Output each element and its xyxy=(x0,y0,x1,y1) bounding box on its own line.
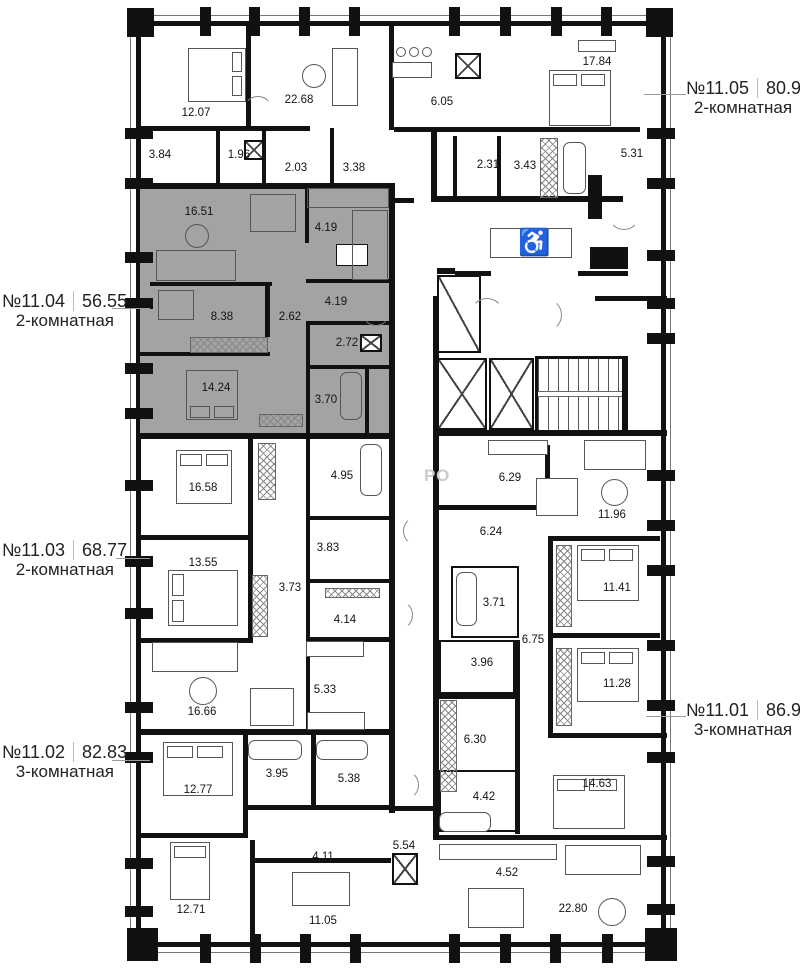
room-area-label: 14.24 xyxy=(202,382,231,394)
stairs-landing xyxy=(538,391,622,397)
room-area-label: 5.33 xyxy=(314,684,336,696)
kitchen-counter-icon xyxy=(352,210,388,280)
wall-segment xyxy=(265,282,270,337)
wall-segment xyxy=(150,282,272,286)
room-area-label: 12.77 xyxy=(184,784,213,796)
wall-segment xyxy=(647,128,675,139)
wall-segment xyxy=(548,536,660,541)
wall-segment xyxy=(306,437,310,731)
round-table-icon xyxy=(598,898,626,926)
wall-segment xyxy=(645,928,677,961)
table-icon xyxy=(392,62,432,78)
apartment-type: 2-комнатная xyxy=(2,560,114,579)
wall-segment xyxy=(595,296,667,301)
wall-segment xyxy=(125,252,153,263)
room-area-label: 16.66 xyxy=(188,706,217,718)
room-area-label: 3.70 xyxy=(315,394,337,406)
wall-segment xyxy=(647,904,675,915)
wall-segment xyxy=(588,175,602,219)
sofa-icon xyxy=(152,642,238,672)
table-icon xyxy=(578,40,616,52)
room-area-label: 2.62 xyxy=(279,311,301,323)
round-table-icon xyxy=(601,479,628,506)
bed-pillow xyxy=(553,74,577,86)
room-area-label: 12.71 xyxy=(177,904,206,916)
wall-segment xyxy=(623,356,628,436)
kitchen-counter-icon xyxy=(307,188,389,208)
bathtub-icon xyxy=(340,372,362,420)
room-area-label: 8.38 xyxy=(211,311,233,323)
table-icon xyxy=(250,688,294,726)
wardrobe-hatch xyxy=(259,414,303,427)
door-arc xyxy=(389,770,419,800)
bed-pillow xyxy=(581,74,605,86)
room-area-label: 12.07 xyxy=(182,107,211,119)
label-leader-line xyxy=(646,716,686,717)
room-area-label: 3.38 xyxy=(343,162,365,174)
room-area-label: 3.84 xyxy=(149,149,171,161)
sofa-icon xyxy=(156,250,236,281)
wall-segment xyxy=(306,365,392,369)
wall-segment xyxy=(306,321,310,433)
room-area-label: 3.43 xyxy=(514,160,536,172)
bed-pillow xyxy=(581,652,605,664)
sofa-icon xyxy=(584,440,646,470)
apartment-number: №11.02 xyxy=(2,742,65,762)
wardrobe-hatch xyxy=(556,648,572,726)
bed-pillow xyxy=(557,779,585,791)
sofa-icon xyxy=(332,48,358,106)
wall-segment xyxy=(551,7,562,36)
apartment-type: 2-комнатная xyxy=(2,311,114,330)
room-area-label: 6.30 xyxy=(464,734,486,746)
wall-segment xyxy=(137,833,248,838)
wall-segment xyxy=(200,934,211,963)
room-area-label: 3.73 xyxy=(279,582,301,594)
door-arc xyxy=(470,298,504,332)
bathtub-icon xyxy=(456,572,477,626)
crossed-shaft xyxy=(489,358,534,430)
apartment-area: 80.90 xyxy=(757,78,800,98)
table-icon xyxy=(158,290,194,320)
apartment-type: 3-комнатная xyxy=(2,762,114,781)
room-area-label: 2.31 xyxy=(477,159,499,171)
wall-segment xyxy=(299,7,310,36)
wall-segment xyxy=(548,633,660,638)
apartment-type: 2-комнатная xyxy=(686,98,800,117)
door-arc xyxy=(403,516,433,546)
bathtub-icon xyxy=(316,740,368,760)
room-area-label: 17.84 xyxy=(583,56,612,68)
wardrobe-hatch xyxy=(540,138,558,198)
wall-segment xyxy=(647,752,675,763)
apartment-label-11-05: №11.0580.90 2-комнатная xyxy=(686,79,800,117)
wall-segment xyxy=(125,858,153,869)
room-area-label: 4.19 xyxy=(325,296,347,308)
wall-segment xyxy=(349,7,360,36)
wall-segment xyxy=(578,271,628,276)
room-area-label: 2.03 xyxy=(285,162,307,174)
round-table-icon xyxy=(422,47,432,57)
wall-segment xyxy=(647,250,675,261)
room-area-label: 3.96 xyxy=(471,657,493,669)
wall-segment xyxy=(647,333,675,344)
wall-segment xyxy=(437,505,547,510)
room-area-label: 5.38 xyxy=(338,773,360,785)
room-area-label: 11.96 xyxy=(598,509,626,521)
bed-pillow xyxy=(214,406,234,418)
wall-segment xyxy=(125,480,153,491)
wall-segment xyxy=(365,368,369,433)
wall-segment xyxy=(330,128,334,185)
bathtub-icon xyxy=(563,142,586,194)
door-arc xyxy=(243,96,273,126)
wall-segment xyxy=(311,733,316,807)
room-area-label: 3.95 xyxy=(266,768,288,780)
wall-segment xyxy=(449,934,460,963)
room-area-label: 5.31 xyxy=(621,148,643,160)
wall-segment xyxy=(431,130,437,202)
room-area-label: 2.72 xyxy=(336,337,358,349)
wheelchair-icon: ♿ xyxy=(518,229,550,255)
apartment-label-11-02: №11.0282.83 3-комнатная xyxy=(2,743,114,781)
bed-pillow xyxy=(197,746,223,758)
bed-pillow xyxy=(172,574,184,596)
room-area-label: 4.52 xyxy=(496,867,518,879)
door-arc xyxy=(362,298,390,326)
watermark: РО xyxy=(424,466,450,486)
bathtub-icon xyxy=(248,740,302,760)
sofa-icon xyxy=(565,845,641,875)
wall-segment xyxy=(590,247,628,269)
bed-pillow xyxy=(190,406,210,418)
wall-segment xyxy=(306,579,392,583)
room-area-label: 6.75 xyxy=(522,634,544,646)
wardrobe-hatch xyxy=(325,588,380,598)
room-area-label: 22.80 xyxy=(559,903,588,915)
crossed-shaft xyxy=(360,334,382,352)
crossed-shaft xyxy=(437,358,487,430)
room-area-label: 6.29 xyxy=(499,472,521,484)
bed-pillow xyxy=(172,600,184,622)
floor-plan: ♿ РО 12.07 22.68 6.05 17.84 3.84 1.96 2.… xyxy=(0,0,800,971)
room-area-label: 6.05 xyxy=(431,96,453,108)
apartment-area: 82.83 xyxy=(73,742,127,762)
crossed-shaft xyxy=(392,853,418,885)
table-icon xyxy=(250,194,296,232)
round-table-icon xyxy=(189,677,217,705)
wall-segment xyxy=(306,516,392,520)
bed-pillow xyxy=(609,652,633,664)
bed-pillow xyxy=(609,549,633,561)
apartment-area: 56.55 xyxy=(73,291,127,311)
wall-segment xyxy=(646,8,673,37)
room-area-label: 4.11 xyxy=(312,851,334,863)
wardrobe-hatch xyxy=(252,575,268,637)
apartment-number: №11.03 xyxy=(2,540,65,560)
bed-pillow xyxy=(206,454,228,466)
wall-segment xyxy=(200,7,211,36)
wall-segment xyxy=(500,7,511,36)
room-area-label: 6.24 xyxy=(480,526,502,538)
wall-segment xyxy=(300,934,311,963)
wall-segment xyxy=(439,694,517,699)
wall-segment xyxy=(647,700,675,711)
wall-segment xyxy=(125,702,153,713)
room-area-label: 4.95 xyxy=(331,470,353,482)
wardrobe-hatch xyxy=(190,337,268,353)
room-area-label: 1.96 xyxy=(228,149,250,161)
wardrobe-hatch xyxy=(258,443,276,500)
room-area-label: 14.63 xyxy=(583,778,612,790)
wall-segment xyxy=(602,934,613,963)
kitchen-counter-icon xyxy=(307,712,365,730)
room-area-label: 4.14 xyxy=(334,614,356,626)
round-table-icon xyxy=(302,64,326,88)
wall-segment xyxy=(127,8,154,37)
wall-segment xyxy=(250,840,255,948)
door-arc xyxy=(383,600,413,630)
wall-segment xyxy=(601,7,612,36)
crossed-shaft xyxy=(455,53,481,79)
round-table-icon xyxy=(185,224,209,248)
wall-segment xyxy=(647,565,675,576)
wall-segment xyxy=(550,934,561,963)
apartment-label-11-04: №11.0456.55 2-комнатная xyxy=(2,292,114,330)
bathtub-icon xyxy=(360,444,382,496)
room-area-label: 3.83 xyxy=(317,542,339,554)
wall-segment xyxy=(647,856,675,867)
kitchen-counter-icon xyxy=(439,844,557,860)
room-area-label: 5.54 xyxy=(393,840,415,852)
table-icon xyxy=(468,888,524,928)
room-area-label: 11.41 xyxy=(603,582,631,594)
wall-segment xyxy=(500,934,511,963)
bed-pillow xyxy=(167,746,193,758)
wall-segment xyxy=(548,733,667,738)
apartment-number: №11.01 xyxy=(686,700,749,720)
bed-pillow xyxy=(180,454,202,466)
sofa-icon xyxy=(292,872,350,906)
wardrobe-hatch xyxy=(556,545,572,627)
wall-segment xyxy=(216,128,220,185)
wall-segment xyxy=(647,470,675,481)
wall-segment xyxy=(647,520,675,531)
bed-pillow xyxy=(174,846,206,858)
bathtub-icon xyxy=(439,812,491,832)
wall-segment xyxy=(125,408,153,419)
wall-segment xyxy=(392,806,437,811)
wall-segment xyxy=(125,752,153,763)
bed-pillow xyxy=(232,52,242,72)
wall-segment xyxy=(389,183,395,813)
room-area-label: 3.71 xyxy=(483,597,505,609)
room-area-label: 13.55 xyxy=(189,557,218,569)
round-table-icon xyxy=(396,47,406,57)
wall-segment xyxy=(125,608,153,619)
room-area-label: 4.42 xyxy=(473,791,495,803)
apartment-label-11-01: №11.0186.95 3-комнатная xyxy=(686,701,800,739)
wall-segment xyxy=(437,835,667,840)
room-area-label: 4.19 xyxy=(315,222,337,234)
wall-segment xyxy=(125,906,153,917)
wall-segment xyxy=(137,126,310,131)
apartment-type: 3-комнатная xyxy=(686,720,800,739)
wall-segment xyxy=(647,640,675,651)
wall-segment xyxy=(449,7,460,36)
wall-segment xyxy=(437,430,667,436)
wardrobe-hatch xyxy=(440,700,457,792)
apartment-label-11-03: №11.0368.77 2-комнатная xyxy=(2,541,114,579)
wall-segment xyxy=(127,928,158,961)
table-icon xyxy=(536,478,578,516)
kitchen-counter-icon xyxy=(306,641,364,657)
wall-segment xyxy=(394,198,414,203)
wall-segment xyxy=(243,805,391,810)
wall-segment xyxy=(125,363,153,374)
wall-segment xyxy=(394,127,640,132)
door-arc xyxy=(528,298,562,332)
label-leader-line xyxy=(644,94,686,95)
room-area-label: 11.05 xyxy=(309,915,337,927)
bed-pillow xyxy=(232,76,242,96)
room-area-label: 16.58 xyxy=(189,482,218,494)
wall-segment xyxy=(647,178,675,189)
bed-pillow xyxy=(581,549,605,561)
kitchen-counter-icon xyxy=(488,440,548,455)
room-area-label: 16.51 xyxy=(185,206,214,218)
round-table-icon xyxy=(409,47,419,57)
wall-segment xyxy=(137,433,394,439)
room-area-label: 11.28 xyxy=(603,678,631,690)
door-arc xyxy=(608,198,640,230)
wall-segment xyxy=(137,535,253,540)
apartment-number: №11.04 xyxy=(2,291,65,311)
apartment-number: №11.05 xyxy=(686,78,749,98)
wall-segment xyxy=(437,268,455,274)
wall-segment xyxy=(453,136,457,202)
wall-segment xyxy=(350,934,361,963)
room-area-label: 22.68 xyxy=(285,94,314,106)
apartment-area: 68.77 xyxy=(73,540,127,560)
apartment-area: 86.95 xyxy=(757,700,800,720)
